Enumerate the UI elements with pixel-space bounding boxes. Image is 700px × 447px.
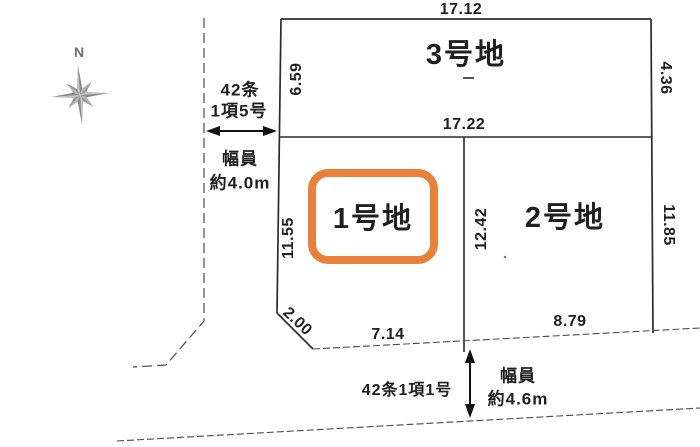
plot1-dim-bottom: 7.14 — [371, 326, 404, 344]
plot-left-edge — [277, 19, 281, 313]
left-road-width-arrow — [206, 126, 277, 136]
plot2-dim-left: 12.42 — [473, 208, 491, 251]
bottom-road-width-label: 幅員 — [500, 362, 536, 387]
plot3-dim-top: 17.12 — [440, 1, 483, 19]
plot-right-edge — [651, 19, 653, 333]
compass-rose-icon — [49, 62, 111, 128]
plot2-dim-bottom: 8.79 — [553, 313, 586, 331]
plot-layout-diagram: N 42条 1項5号 幅員 約4.0m 17.12 3号地 6.59 4.36 … — [0, 0, 700, 447]
plot3-name-label: 3号地 — [426, 31, 506, 73]
left-road-width-value: 約4.0m — [210, 169, 271, 194]
bottom-road-width-value: 約4.6m — [488, 385, 549, 410]
plot2-dim-right: 11.85 — [659, 204, 677, 246]
left-road-class-line2: 1項5号 — [211, 97, 268, 122]
plot2-small-dot-mark — [504, 256, 506, 258]
plot3-dim-left: 6.59 — [288, 62, 306, 95]
left-road-edge — [133, 18, 204, 367]
plot2-name-label: 2号地 — [525, 194, 605, 236]
bottom-road-lower-edge — [117, 408, 700, 441]
left-road-width-label: 幅員 — [222, 145, 258, 170]
plot3-dim-bottom: 17.22 — [443, 116, 486, 134]
plot1-name-label: 1号地 — [333, 195, 413, 237]
bottom-road-width-arrow — [465, 349, 475, 418]
bottom-road-classification: 42条1項1号 — [362, 376, 453, 400]
plot1-dim-left: 11.55 — [280, 217, 298, 259]
plot3-dim-right: 4.36 — [656, 61, 674, 94]
compass-north-label: N — [74, 44, 84, 60]
